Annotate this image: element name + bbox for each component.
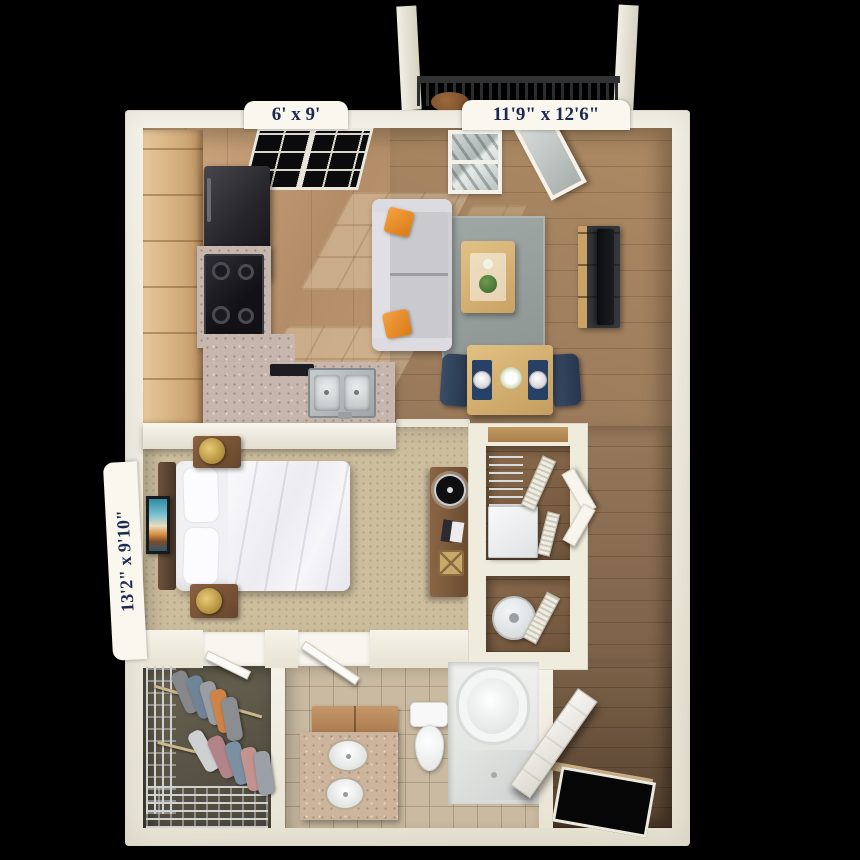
record-spindle [447, 487, 453, 493]
bathtub [456, 667, 530, 745]
burner [212, 262, 230, 280]
burner [212, 306, 230, 324]
bed-pillow [182, 466, 220, 523]
storage-basket [438, 550, 464, 576]
bathtub-basin [467, 678, 519, 734]
burner [238, 264, 254, 280]
dimension-label-living: 11'9" x 12'6" [462, 100, 630, 130]
dinner-plate [474, 372, 490, 388]
book-stack [442, 520, 464, 544]
kitchen-half-wall [143, 423, 396, 449]
coffee-table-plant [479, 275, 497, 293]
heater-cap [509, 613, 519, 623]
television [597, 229, 614, 325]
placemat [528, 360, 548, 400]
dimension-text: 13'2" x 9'10" [112, 510, 138, 613]
shower-drain [491, 772, 497, 778]
washer-unit [488, 506, 538, 558]
sink-basin [344, 375, 370, 411]
sink-basin [314, 375, 340, 411]
flower-centerpiece [500, 367, 522, 389]
vanity-sink [325, 777, 365, 810]
hallway-floor [588, 427, 672, 667]
window-mullion [452, 160, 498, 164]
range-cooktop [204, 254, 264, 340]
wire-shelving [146, 786, 268, 828]
burner [238, 308, 254, 324]
living-room-window [448, 130, 502, 194]
wire-shelving [489, 452, 523, 506]
kitchen-cabinets [143, 130, 203, 424]
fridge-handle [207, 178, 211, 222]
kitchen-faucet [338, 412, 352, 419]
dimension-label-kitchen: 6' x 9' [244, 101, 348, 129]
kitchen-double-sink [308, 368, 376, 418]
table-lamp [196, 588, 222, 614]
floor-transition-strip [396, 419, 470, 427]
dinner-plate [530, 372, 546, 388]
bedroom-south-wall [143, 630, 203, 668]
bed-duvet [228, 461, 350, 591]
dimension-text: 6' x 9' [272, 104, 321, 126]
wall-art-frame [146, 496, 170, 554]
bedroom-south-wall [265, 630, 298, 668]
vanity-sink [327, 739, 369, 772]
bed-pillow [182, 526, 220, 585]
coffee-table [461, 241, 515, 313]
record-player [436, 476, 464, 504]
sink-drain [354, 390, 359, 395]
floorplan-scene: 6' x 9' 11'9" x 12'6" 13'2" x 9'10" [0, 0, 860, 860]
table-lamp [199, 438, 225, 464]
sink-drain [324, 390, 329, 395]
sofa-armrest [372, 199, 452, 212]
dining-table [467, 345, 553, 415]
sofa-armrest [372, 338, 452, 351]
coffee-table-dish [483, 259, 493, 269]
dining-chair [550, 353, 582, 407]
sink-drain [343, 792, 348, 797]
toilet-tank [410, 702, 448, 727]
wall-closet-bathroom [271, 662, 285, 828]
book [450, 521, 465, 542]
sofa [372, 199, 452, 351]
closet-shelf [488, 427, 568, 442]
orange-throw-pillow [382, 309, 413, 340]
sink-drain [346, 754, 351, 759]
placemat [472, 360, 492, 400]
dimension-text: 11'9" x 12'6" [493, 104, 600, 126]
